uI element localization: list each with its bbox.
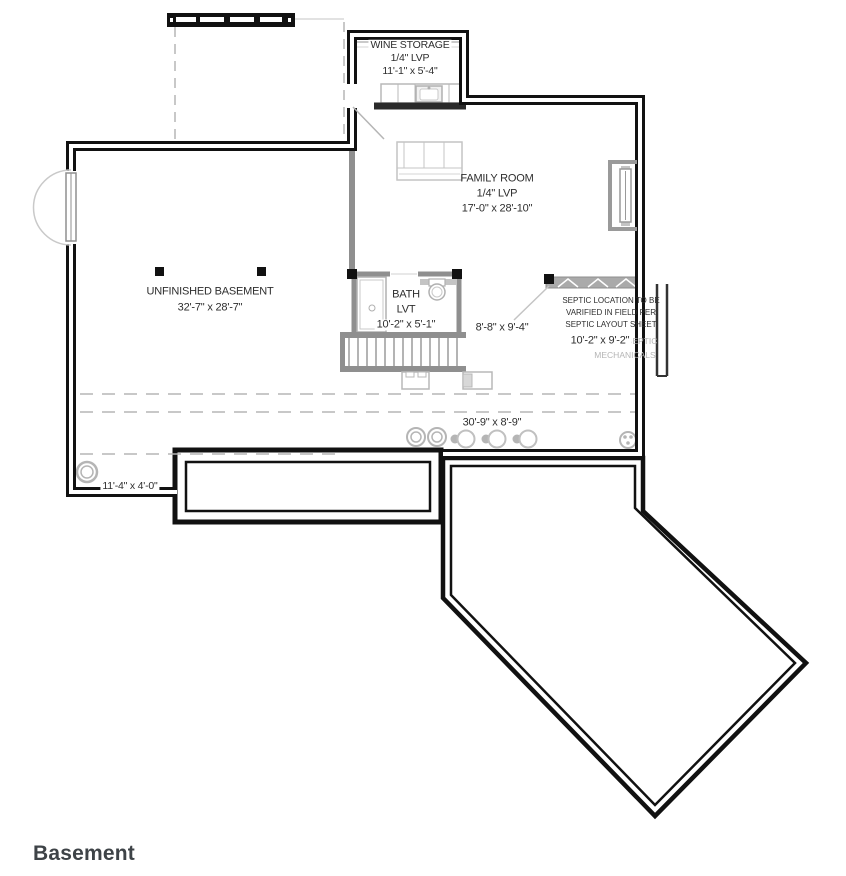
structural-posts [155, 267, 462, 279]
deck-above-projection [167, 13, 344, 145]
overhead-beam-dashed [80, 394, 636, 454]
wall-openings [34, 84, 638, 245]
family-room-dims: 17'-0" x 28'-10" [462, 204, 533, 215]
bath-label: BATH [390, 290, 422, 301]
sump-pit-symbol [77, 462, 97, 482]
bath-dims: 10'-2" x 5'-1" [375, 320, 438, 331]
door-swing [514, 286, 549, 320]
septic-note-line1: SEPTIC LOCATION TO BE [562, 297, 659, 305]
sump-area-dims: 11'-4" x 4'-0" [100, 481, 159, 492]
stair-area-dims: 8'-8" x 9'-4" [476, 323, 529, 334]
unfinished-basement-dims: 32'-7" x 28'-7" [178, 303, 243, 314]
column-post [257, 267, 266, 276]
family-room-floor: 1/4" LVP [477, 189, 518, 200]
septic-mechanicals-label-line2: MECHANICALS [594, 351, 655, 360]
wet-bar-cabinets [381, 84, 466, 103]
unexcavated-foundation [443, 458, 806, 816]
septic-mechanicals-dims: 10'-2" x 9'-2" [569, 336, 632, 347]
septic-note-line2: VARIFIED IN FIELD PER [566, 309, 656, 317]
column-post [347, 269, 357, 279]
unfinished-basement-label: UNFINISHED BASEMENT [147, 287, 274, 298]
bar-sink-icon [416, 86, 442, 102]
tank-circle [428, 428, 446, 446]
wine-storage-floor: 1/4" LVP [389, 53, 432, 64]
floor-plan-page: WINE STORAGE 1/4" LVP 11'-1" x 5'-4" FAM… [0, 0, 846, 876]
column-post [155, 267, 164, 276]
family-room-label: FAMILY ROOM [460, 174, 533, 185]
door-swing [353, 107, 384, 139]
floor-drain-symbol [620, 432, 636, 448]
porch-foundation [175, 450, 441, 522]
wine-storage-label: WINE STORAGE [368, 40, 451, 51]
wine-storage-dims: 11'-1" x 5'-4" [380, 66, 439, 77]
column-post [452, 269, 462, 279]
stairs [340, 332, 466, 372]
tank-circle [407, 428, 425, 446]
sheet-title: Basement [33, 842, 135, 866]
septic-note-line3: SEPTIC LAYOUT SHEET [565, 321, 656, 329]
right-window-assembly [610, 162, 637, 229]
bath-floor: LVT [395, 305, 418, 316]
utility-span-dims: 30'-9" x 8'-9" [461, 418, 524, 429]
furnace-equipment [402, 372, 492, 389]
toilet-icon [429, 279, 445, 300]
sofa [397, 142, 462, 180]
basement-floor-plan-drawing [0, 0, 846, 876]
column-post [544, 274, 554, 284]
